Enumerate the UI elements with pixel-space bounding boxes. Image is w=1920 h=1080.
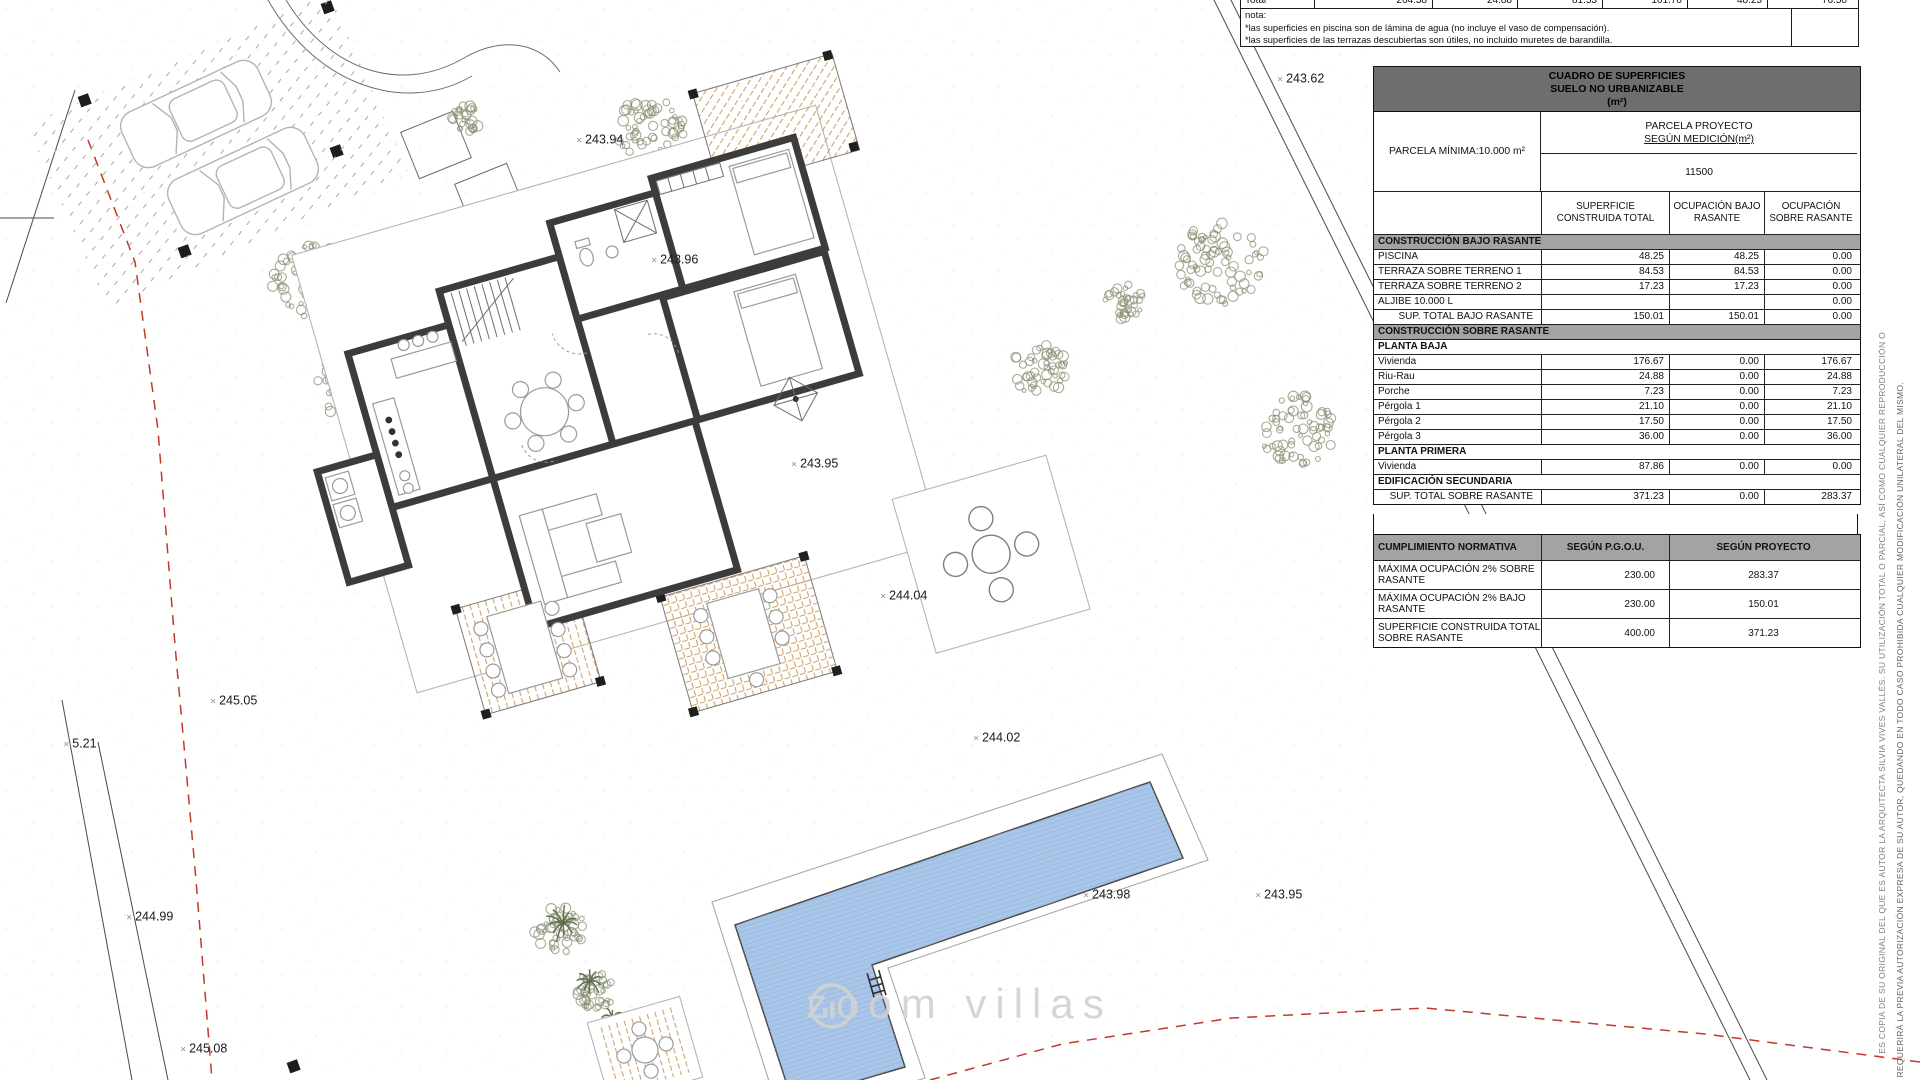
row-cell: 150.01 xyxy=(1669,590,1857,618)
row-value: 17.23 xyxy=(1669,280,1764,294)
row-value: 24.88 xyxy=(1541,370,1669,384)
parcela-minima: PARCELA MÍNIMA:10.000 m² xyxy=(1374,112,1541,191)
legal-text-vertical: ES COPIA DE SU ORIGINAL DEL QUE ES AUTOR… xyxy=(1877,332,1887,1054)
total-value: 48.25 xyxy=(1687,0,1767,9)
surfaces-table: CUADRO DE SUPERFICIES SUELO NO URBANIZAB… xyxy=(1373,66,1861,505)
row-cell: MÁXIMA OCUPACIÓN 2% BAJO RASANTE xyxy=(1374,590,1541,618)
row-cell: 371.23 xyxy=(1669,619,1857,647)
elevation-label: 243.95 xyxy=(791,456,838,470)
elevation-label: 244.02 xyxy=(973,730,1020,744)
parcela-value: 11500 xyxy=(1541,154,1857,191)
row-value: 371.23 xyxy=(1541,490,1669,504)
table-row: SUPERFICIE CONSTRUIDA TOTAL SOBRE RASANT… xyxy=(1374,619,1860,647)
notes-table: Total 264.3824.8881.53101.7048.2576.50 n… xyxy=(1240,0,1859,47)
row-value: 36.00 xyxy=(1764,430,1857,444)
row-label: Vivienda xyxy=(1374,355,1541,369)
row-value: 7.23 xyxy=(1764,385,1857,399)
row-value: 7.23 xyxy=(1541,385,1669,399)
row-value: 0.00 xyxy=(1669,490,1764,504)
table-title: CUADRO DE SUPERFICIES SUELO NO URBANIZAB… xyxy=(1374,67,1860,112)
table-row: ALJIBE 10.000 L0.00 xyxy=(1374,295,1860,310)
table-row: Vivienda176.670.00176.67 xyxy=(1374,355,1860,370)
compliance-table: CUMPLIMIENTO NORMATIVA SEGÚN P.G.O.U. SE… xyxy=(1373,534,1861,648)
row-value: 17.50 xyxy=(1764,415,1857,429)
row-label: ALJIBE 10.000 L xyxy=(1374,295,1541,309)
row-value: 48.25 xyxy=(1669,250,1764,264)
row-value: 0.00 xyxy=(1669,460,1764,474)
row-value: 0.00 xyxy=(1764,265,1857,279)
row-cell: 400.00 xyxy=(1541,619,1669,647)
row-value: 0.00 xyxy=(1764,250,1857,264)
elevation-label: 243.62 xyxy=(1277,71,1324,85)
row-value: 84.53 xyxy=(1541,265,1669,279)
row-value: 176.67 xyxy=(1764,355,1857,369)
table-row: PLANTA BAJA xyxy=(1374,340,1860,355)
row-label: SUP. TOTAL SOBRE RASANTE xyxy=(1374,490,1541,504)
row-value: 48.25 xyxy=(1541,250,1669,264)
table-row: MÁXIMA OCUPACIÓN 2% BAJO RASANTE230.0015… xyxy=(1374,590,1860,619)
total-value: 101.70 xyxy=(1602,0,1687,9)
table-row: SUP. TOTAL SOBRE RASANTE371.230.00283.37 xyxy=(1374,490,1860,504)
elevation-label: 245.05 xyxy=(210,693,257,707)
total-value: 81.53 xyxy=(1517,0,1602,9)
column-headers: SUPERFICIE CONSTRUIDA TOTAL OCUPACIÓN BA… xyxy=(1374,192,1860,235)
table-row: MÁXIMA OCUPACIÓN 2% SOBRE RASANTE230.002… xyxy=(1374,561,1860,590)
row-value: 0.00 xyxy=(1669,355,1764,369)
table-row: PLANTA PRIMERA xyxy=(1374,445,1860,460)
row-value: 87.86 xyxy=(1541,460,1669,474)
row-label: SUP. TOTAL BAJO RASANTE xyxy=(1374,310,1541,324)
footnote: *las superficies de las terrazas descubi… xyxy=(1241,34,1858,46)
elevation-label: 243.96 xyxy=(651,252,698,266)
elevation-label: 243.95 xyxy=(1255,887,1302,901)
row-label: Vivienda xyxy=(1374,460,1541,474)
table-row: TERRAZA SOBRE TERRENO 184.5384.530.00 xyxy=(1374,265,1860,280)
row-value xyxy=(1541,295,1669,309)
parcela-proyecto: PARCELA PROYECTO SEGÚN MEDICIÓN(m²) xyxy=(1541,112,1857,154)
total-label: Total xyxy=(1245,0,1314,6)
elevation-label: 244.04 xyxy=(880,588,927,602)
elevation-label: 243.98 xyxy=(1083,887,1130,901)
row-value: 0.00 xyxy=(1669,400,1764,414)
row-label: TERRAZA SOBRE TERRENO 1 xyxy=(1374,265,1541,279)
elevation-label: 5.21 xyxy=(63,736,96,750)
row-value: 21.10 xyxy=(1764,400,1857,414)
row-label: Porche xyxy=(1374,385,1541,399)
table-row: EDIFICACIÓN SECUNDARIA xyxy=(1374,475,1860,490)
row-label: Pérgola 2 xyxy=(1374,415,1541,429)
row-cell: 283.37 xyxy=(1669,561,1857,589)
table-row: CONSTRUCCIÓN BAJO RASANTE xyxy=(1374,235,1860,250)
table-spacer xyxy=(1373,514,1858,534)
row-label: PISCINA xyxy=(1374,250,1541,264)
table-row: Porche7.230.007.23 xyxy=(1374,385,1860,400)
elevation-label: 244.99 xyxy=(126,909,173,923)
nota-label: nota: xyxy=(1245,10,1266,21)
row-label: PLANTA PRIMERA xyxy=(1374,445,1860,459)
row-value: 0.00 xyxy=(1669,370,1764,384)
compliance-headers: CUMPLIMIENTO NORMATIVA SEGÚN P.G.O.U. SE… xyxy=(1374,535,1860,561)
row-label: Pérgola 3 xyxy=(1374,430,1541,444)
table-row: Riu-Rau24.880.0024.88 xyxy=(1374,370,1860,385)
row-cell: MÁXIMA OCUPACIÓN 2% SOBRE RASANTE xyxy=(1374,561,1541,589)
row-label: TERRAZA SOBRE TERRENO 2 xyxy=(1374,280,1541,294)
row-value: 36.00 xyxy=(1541,430,1669,444)
row-label: CONSTRUCCIÓN BAJO RASANTE xyxy=(1374,235,1860,249)
row-value: 24.88 xyxy=(1764,370,1857,384)
table-row: CONSTRUCCIÓN SOBRE RASANTE xyxy=(1374,325,1860,340)
legal-text-vertical: REQUERIRÁ LA PREVIA AUTORIZACIÓN EXPRESA… xyxy=(1895,382,1905,1078)
table-row: Pérgola 217.500.0017.50 xyxy=(1374,415,1860,430)
nota-row: nota: xyxy=(1241,9,1858,22)
table-row: SUP. TOTAL BAJO RASANTE150.01150.010.00 xyxy=(1374,310,1860,325)
row-label: EDIFICACIÓN SECUNDARIA xyxy=(1374,475,1860,489)
table-row: PISCINA48.2548.250.00 xyxy=(1374,250,1860,265)
row-label: Riu-Rau xyxy=(1374,370,1541,384)
total-value: 264.38 xyxy=(1314,0,1432,9)
compliance-rows: MÁXIMA OCUPACIÓN 2% SOBRE RASANTE230.002… xyxy=(1374,561,1860,647)
table-row: Vivienda87.860.000.00 xyxy=(1374,460,1860,475)
elevation-label: 243.94 xyxy=(576,132,623,146)
row-cell: 230.00 xyxy=(1541,590,1669,618)
row-value: 0.00 xyxy=(1764,460,1857,474)
table-row: TERRAZA SOBRE TERRENO 217.2317.230.00 xyxy=(1374,280,1860,295)
total-value: 24.88 xyxy=(1432,0,1517,9)
row-value: 17.23 xyxy=(1541,280,1669,294)
row-value: 0.00 xyxy=(1764,280,1857,294)
row-label: Pérgola 1 xyxy=(1374,400,1541,414)
elevation-label: 245.08 xyxy=(180,1041,227,1055)
row-value: 0.00 xyxy=(1669,415,1764,429)
row-value xyxy=(1669,295,1764,309)
total-value: 76.50 xyxy=(1767,0,1852,9)
row-value: 150.01 xyxy=(1541,310,1669,324)
row-cell: SUPERFICIE CONSTRUIDA TOTAL SOBRE RASANT… xyxy=(1374,619,1541,647)
row-value: 84.53 xyxy=(1669,265,1764,279)
table-row: Pérgola 121.100.0021.10 xyxy=(1374,400,1860,415)
table-row: Pérgola 336.000.0036.00 xyxy=(1374,430,1860,445)
row-value: 0.00 xyxy=(1764,310,1857,324)
row-value: 176.67 xyxy=(1541,355,1669,369)
surfaces-rows: CONSTRUCCIÓN BAJO RASANTEPISCINA48.2548.… xyxy=(1374,235,1860,504)
table-row: Total 264.3824.8881.53101.7048.2576.50 xyxy=(1241,0,1858,9)
row-value: 0.00 xyxy=(1764,295,1857,309)
row-cell: 230.00 xyxy=(1541,561,1669,589)
row-value: 150.01 xyxy=(1669,310,1764,324)
row-value: 17.50 xyxy=(1541,415,1669,429)
row-value: 21.10 xyxy=(1541,400,1669,414)
row-value: 0.00 xyxy=(1669,385,1764,399)
row-label: PLANTA BAJA xyxy=(1374,340,1860,354)
site-plan-sheet: .base{fill:#fff;stroke:#b5b5b5;stroke-wi… xyxy=(0,0,1920,1080)
row-value: 283.37 xyxy=(1764,490,1857,504)
row-value: 0.00 xyxy=(1669,430,1764,444)
footnote: *las superficies en piscina son de lámin… xyxy=(1241,22,1858,34)
row-label: CONSTRUCCIÓN SOBRE RASANTE xyxy=(1374,325,1860,339)
